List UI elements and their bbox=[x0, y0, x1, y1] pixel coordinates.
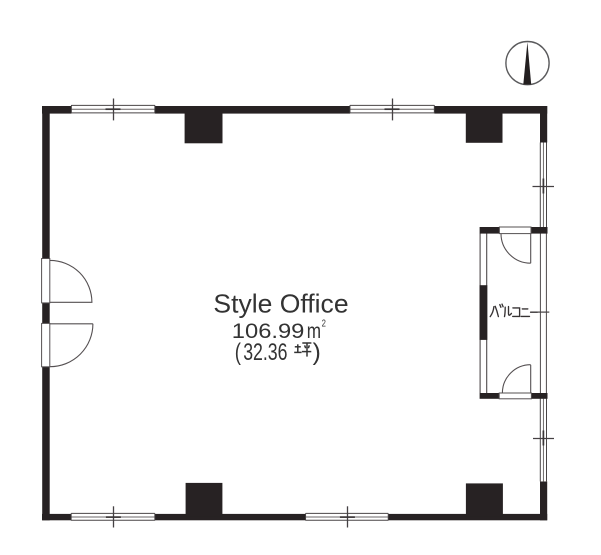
svg-text:32.36: 32.36 bbox=[243, 339, 287, 366]
svg-text:2: 2 bbox=[322, 317, 326, 329]
svg-text:(: ( bbox=[235, 339, 241, 366]
svg-text:Style Office: Style Office bbox=[213, 288, 348, 318]
svg-text:): ) bbox=[313, 339, 321, 366]
